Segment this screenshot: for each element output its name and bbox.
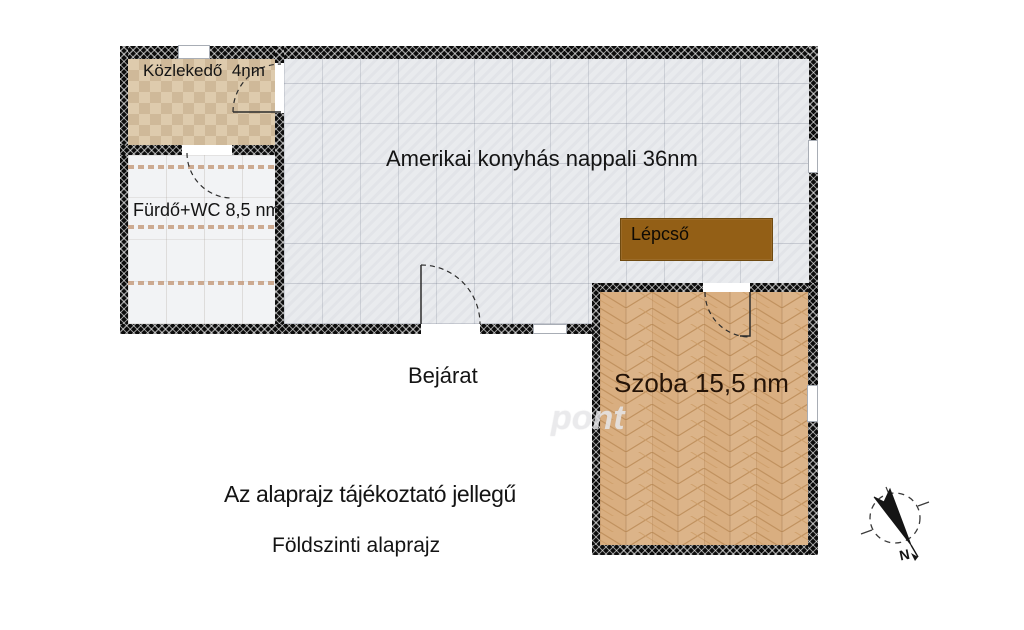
wall-left	[120, 46, 128, 334]
bedroom-floor	[600, 292, 808, 545]
wall-top	[120, 46, 818, 59]
disclaimer-text: Az alaprajz tájékoztató jellegű	[224, 481, 516, 508]
wall-bottom	[120, 324, 600, 334]
door-opening-entrance	[421, 324, 480, 334]
bedroom-label: Szoba 15,5 nm	[614, 368, 789, 399]
door-opening-hallway	[275, 63, 284, 113]
bathroom-tile-band	[128, 281, 275, 285]
compass-north-icon: N	[861, 487, 929, 564]
hallway-label: Közlekedő 4nm	[143, 61, 265, 81]
entrance-label: Bejárat	[408, 363, 478, 389]
bathroom-tile-band	[128, 225, 275, 229]
bathroom-tile-band	[128, 165, 275, 169]
floor-name-text: Földszinti alaprajz	[272, 534, 440, 558]
compass-letter: N	[898, 546, 911, 564]
living-room-label: Amerikai konyhás nappali 36nm	[386, 146, 698, 172]
bathroom-floor	[128, 155, 275, 324]
bathroom-label: Fürdő+WC 8,5 nm	[133, 200, 281, 221]
window-right-living	[808, 140, 818, 173]
window-bottom-living	[533, 324, 567, 334]
floor-plan-canvas: Lépcső N Közlekedő 4nm Fürdő+WC 8,5 nm A…	[0, 0, 1024, 630]
door-opening-bathroom	[182, 145, 232, 155]
window-top	[178, 45, 210, 59]
stairs-label: Lépcső	[631, 224, 689, 245]
stairs-block: Lépcső	[620, 218, 773, 261]
herringbone-parquet	[600, 292, 808, 545]
watermark-text: pont	[551, 399, 625, 438]
window-bedroom-right	[807, 385, 818, 422]
door-opening-bedroom	[703, 283, 750, 292]
wall-bedroom-bottom	[592, 545, 818, 555]
